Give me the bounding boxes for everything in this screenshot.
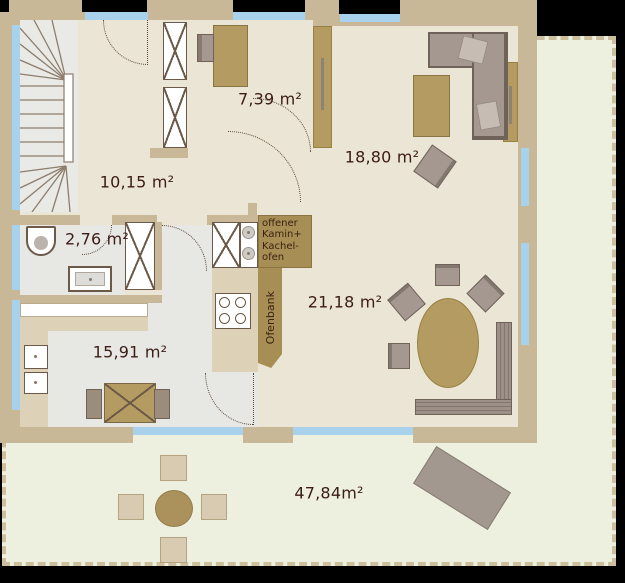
- window-left-stairs: [12, 25, 20, 210]
- wall-bath-top-left: [0, 215, 80, 225]
- kitchen-cabinet-x: [212, 222, 240, 268]
- door-leaf-kitchen-dining: [253, 373, 254, 425]
- window-top-2: [233, 12, 305, 20]
- corner-bench-horizontal: [415, 399, 512, 415]
- roof-gap-3: [339, 0, 400, 14]
- oven-appliance: [24, 345, 48, 369]
- terrace-chair-right: [201, 494, 227, 520]
- closet-office-2: [163, 87, 187, 148]
- roof-gap-2: [233, 0, 305, 12]
- terrace-table: [155, 490, 193, 527]
- kitchen-table: [104, 383, 156, 423]
- label-dining-room: 21,18 m²: [308, 293, 383, 312]
- roof-gap-1: [82, 0, 147, 12]
- terrace-under-window-2: [293, 435, 413, 443]
- wall-bottom-right: [413, 427, 537, 443]
- roof-gap-corner: [537, 0, 625, 36]
- desk: [213, 25, 248, 87]
- wall-bath-closet-sep: [155, 222, 162, 290]
- stove: [215, 293, 251, 329]
- worktop-top: [20, 303, 148, 317]
- toilet-bowl: [34, 236, 48, 250]
- wall-stub-vertical: [248, 203, 257, 217]
- dining-chair-bottom: [388, 343, 410, 369]
- closet-bath-wall: [125, 222, 155, 290]
- window-bottom-1: [133, 427, 243, 435]
- dining-chair-top: [435, 264, 460, 286]
- window-top-3: [340, 14, 400, 22]
- terrace-under-window-1: [133, 435, 243, 443]
- door-leaf-entrance: [147, 20, 148, 65]
- window-right-1: [521, 148, 529, 206]
- terrace-chair-left: [118, 494, 144, 520]
- oven-bench: Ofenbank: [258, 268, 282, 368]
- desk-chair: [197, 34, 214, 62]
- window-left-kitchen: [12, 300, 20, 410]
- label-kitchen: 15,91 m²: [93, 343, 168, 362]
- wall-bath-bottom: [20, 295, 162, 303]
- toilet: [26, 226, 56, 256]
- closet-office-1: [163, 22, 187, 80]
- terrace-chair-top: [160, 455, 187, 481]
- shower-tray: [75, 272, 105, 286]
- cabinet-right-handle: [509, 86, 512, 124]
- window-left-bath: [12, 225, 20, 290]
- fireplace-block: offener Kamin+ Kachel- ofen: [258, 215, 312, 268]
- staircase: [20, 20, 78, 212]
- sofa-cushion-2: [476, 100, 501, 130]
- label-living-room: 18,80 m²: [345, 148, 420, 167]
- wall-bottom-left: [0, 427, 133, 443]
- kitchen-sink: [240, 222, 258, 268]
- terrace-chair-bottom: [160, 537, 187, 563]
- label-hallway: 10,15 m²: [100, 173, 175, 192]
- counter-top-strip: [20, 317, 148, 331]
- window-bottom-2: [293, 427, 413, 435]
- wall-bottom-pier: [243, 427, 293, 443]
- label-terrace: 47,84m²: [294, 484, 363, 503]
- kitchen-chair-left: [86, 389, 102, 419]
- dishwasher-appliance: [24, 372, 48, 394]
- shower: [68, 266, 112, 292]
- floor-plan: offener Kamin+ Kachel- ofen Ofenbank 10,…: [0, 0, 625, 583]
- label-office: 7,39 m²: [238, 90, 302, 109]
- oven-bench-label: Ofenbank: [264, 291, 277, 344]
- wardrobe-left-handle: [321, 58, 324, 110]
- wall-under-closets: [150, 148, 188, 158]
- label-bathroom: 2,76 m²: [65, 230, 129, 249]
- roof-gap-left: [0, 0, 9, 12]
- kitchen-chair-right: [154, 389, 170, 419]
- dining-table: [417, 298, 479, 388]
- right-wall: [518, 12, 537, 443]
- window-top-1: [85, 12, 148, 20]
- window-right-2: [521, 243, 529, 345]
- coffee-table: [413, 75, 450, 137]
